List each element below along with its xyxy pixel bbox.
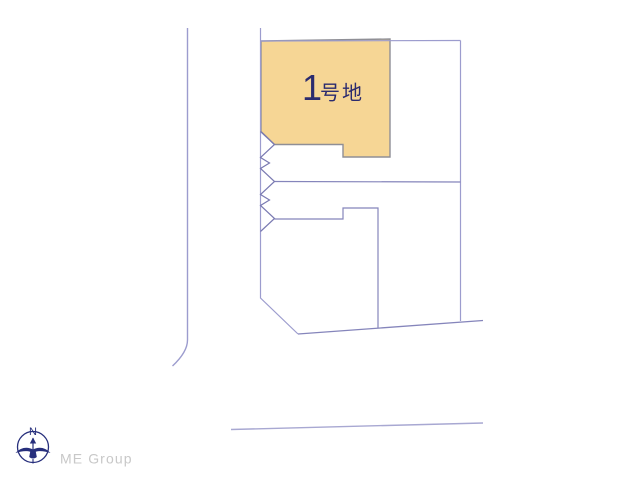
top-boundary-line — [261, 41, 461, 42]
north-label: N — [29, 426, 37, 438]
bottom-road-line — [231, 423, 483, 430]
north-compass-icon: N — [16, 426, 51, 464]
bottom-boundary-line — [298, 321, 483, 335]
plot-map-page: 1 号地 N ME Group — [0, 0, 640, 480]
step-divider-line — [275, 208, 379, 329]
center-divider-line — [275, 182, 461, 183]
land-plot-diagram: 1 号地 N ME Group — [0, 0, 640, 480]
brand-text: ME Group — [60, 451, 133, 467]
left-road-line — [173, 28, 188, 366]
chevron-boundary-marks-icon — [261, 132, 275, 232]
plot-1-suffix-text: 号地 — [320, 82, 364, 105]
